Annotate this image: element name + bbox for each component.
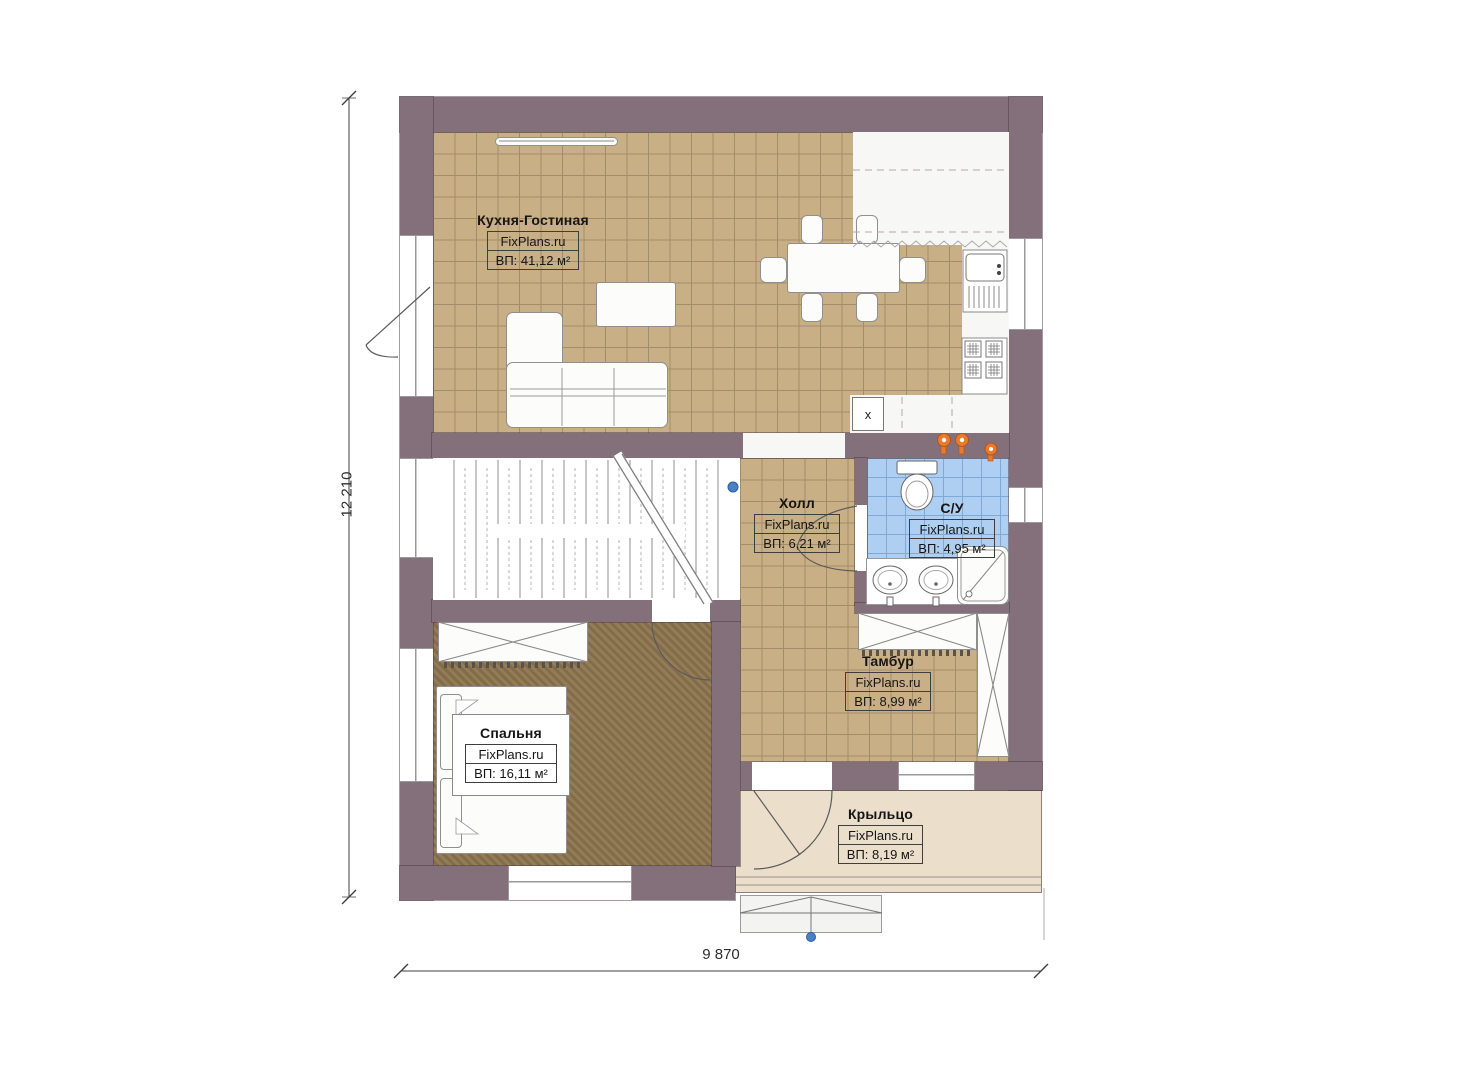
dining-chair <box>856 215 878 244</box>
coffee-table <box>596 282 676 327</box>
appliance-mark-label: x <box>865 407 872 422</box>
vestibule-closet <box>977 613 1009 757</box>
opening-living-hall <box>743 433 845 458</box>
room-info-box: FixPlans.ru ВП: 6,21 м² <box>754 514 839 553</box>
window-vestibule-bottom <box>898 762 975 790</box>
radiator <box>495 137 618 146</box>
dimension-height-label: 12 210 <box>339 460 356 530</box>
door-vestibule-porch <box>752 762 832 790</box>
window-kitchen-right <box>1009 238 1042 330</box>
brand-watermark: FixPlans.ru <box>488 232 579 250</box>
room-info-box: FixPlans.ru ВП: 16,11 м² <box>465 744 557 783</box>
room-area: ВП: 16,11 м² <box>466 763 556 782</box>
bedroom-wardrobe <box>438 622 588 662</box>
room-label-bedroom: Спальня FixPlans.ru ВП: 16,11 м² <box>452 714 570 796</box>
dimension-width-label: 9 870 <box>681 946 761 963</box>
window-living-left <box>400 235 433 397</box>
kitchen-counter-right <box>962 245 1009 395</box>
room-area: ВП: 8,99 м² <box>846 691 929 710</box>
wall-living-hall <box>432 433 1009 458</box>
opening-bedroom-door <box>652 600 710 622</box>
room-label-kitchen: Кухня-Гостиная FixPlans.ru ВП: 41,12 м² <box>463 212 603 270</box>
dining-chair <box>899 257 926 283</box>
room-area: ВП: 6,21 м² <box>755 533 838 552</box>
room-info-box: FixPlans.ru ВП: 4,95 м² <box>909 519 994 558</box>
dining-chair <box>856 293 878 322</box>
sofa <box>506 362 668 428</box>
brand-watermark: FixPlans.ru <box>466 745 556 763</box>
room-name: Крыльцо <box>803 806 958 822</box>
room-area: ВП: 8,19 м² <box>839 844 922 863</box>
vestibule-wardrobe <box>858 613 977 650</box>
staircase-area <box>433 458 740 600</box>
dining-table <box>787 243 900 293</box>
window-bedroom-left <box>400 648 433 782</box>
wall-right <box>1009 97 1042 790</box>
brand-watermark: FixPlans.ru <box>846 673 929 691</box>
dimension-line-horizontal <box>394 964 1048 978</box>
wardrobe-rail <box>444 662 582 668</box>
dining-chair <box>801 293 823 322</box>
room-name: Холл <box>747 495 847 511</box>
wall-top <box>400 97 1042 132</box>
bathroom-sink-counter <box>866 558 962 605</box>
room-name: Спальня <box>459 725 563 741</box>
room-info-box: FixPlans.ru ВП: 8,99 м² <box>845 672 930 711</box>
room-label-hall: Холл FixPlans.ru ВП: 6,21 м² <box>747 495 847 553</box>
window-bedroom-bottom <box>508 866 632 900</box>
room-label-vestibule: Тамбур FixPlans.ru ВП: 8,99 м² <box>833 653 943 711</box>
dining-chair <box>801 215 823 244</box>
brand-watermark: FixPlans.ru <box>755 515 838 533</box>
room-info-box: FixPlans.ru ВП: 41,12 м² <box>487 231 580 270</box>
room-info-box: FixPlans.ru ВП: 8,19 м² <box>838 825 923 864</box>
room-label-porch: Крыльцо FixPlans.ru ВП: 8,19 м² <box>803 806 958 864</box>
window-stairs-left <box>400 458 433 558</box>
dining-chair <box>760 257 787 283</box>
room-area: ВП: 41,12 м² <box>488 250 579 269</box>
room-area: ВП: 4,95 м² <box>910 538 993 557</box>
room-name: С/У <box>897 500 1007 516</box>
porch-steps <box>740 895 882 933</box>
wall-bedroom-vestibule <box>712 622 740 866</box>
room-name: Кухня-Гостиная <box>463 212 603 228</box>
appliance-box: x <box>852 397 884 431</box>
window-bathroom-right <box>1009 487 1042 523</box>
room-label-bathroom: С/У FixPlans.ru ВП: 4,95 м² <box>897 500 1007 558</box>
room-name: Тамбур <box>833 653 943 669</box>
floor-plan-canvas: x <box>0 0 1474 1080</box>
brand-watermark: FixPlans.ru <box>839 826 922 844</box>
brand-watermark: FixPlans.ru <box>910 520 993 538</box>
